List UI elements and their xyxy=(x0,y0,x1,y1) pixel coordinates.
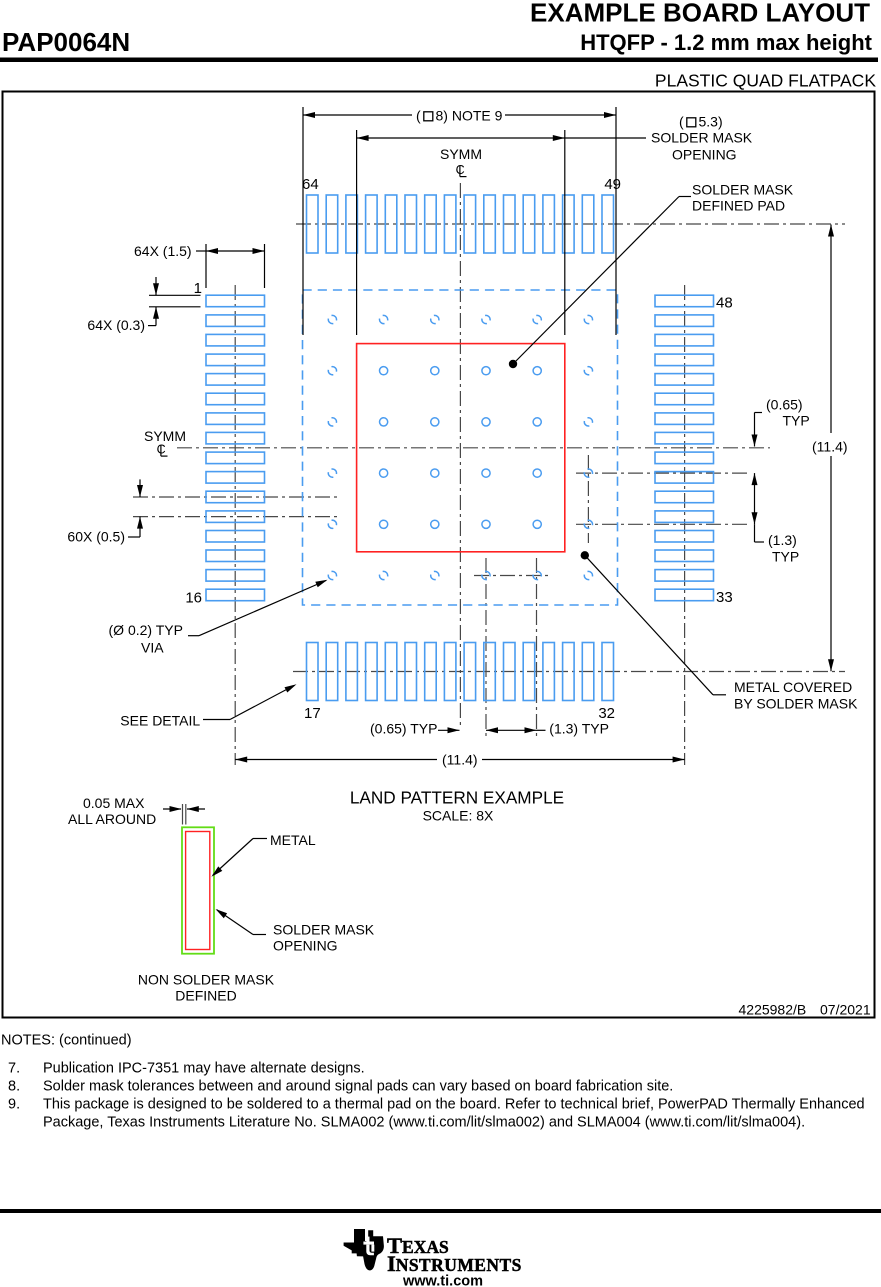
svg-text:32: 32 xyxy=(598,705,615,722)
svg-text:1: 1 xyxy=(194,280,202,297)
svg-text:DEFINED: DEFINED xyxy=(175,988,236,1004)
svg-text:www.ti.com: www.ti.com xyxy=(402,1274,483,1287)
svg-text:EXAMPLE BOARD LAYOUT: EXAMPLE BOARD LAYOUT xyxy=(530,0,870,27)
svg-text:8.: 8. xyxy=(8,1079,20,1095)
svg-text:PLASTIC QUAD FLATPACK: PLASTIC QUAD FLATPACK xyxy=(655,71,876,91)
svg-text:64: 64 xyxy=(302,176,319,193)
svg-text:NON SOLDER MASK: NON SOLDER MASK xyxy=(138,972,275,988)
svg-text:48: 48 xyxy=(716,295,733,312)
svg-text:SEE DETAIL: SEE DETAIL xyxy=(120,713,200,729)
svg-text:Solder mask tolerances between: Solder mask tolerances between and aroun… xyxy=(43,1079,673,1095)
svg-text:INSTRUMENTS: INSTRUMENTS xyxy=(387,1251,522,1276)
svg-text:4225982/B: 4225982/B xyxy=(739,1002,807,1018)
svg-text:Publication IPC-7351 may have: Publication IPC-7351 may have alternate … xyxy=(43,1061,365,1077)
svg-text:07/2021: 07/2021 xyxy=(820,1002,871,1018)
svg-text:(11.4): (11.4) xyxy=(442,752,478,768)
svg-text:5.3): 5.3) xyxy=(699,114,723,130)
svg-text:LAND PATTERN EXAMPLE: LAND PATTERN EXAMPLE xyxy=(350,787,564,807)
svg-text:This package is designed to be: This package is designed to be soldered … xyxy=(43,1097,865,1113)
svg-text:(1.3): (1.3) xyxy=(768,532,797,548)
svg-text:16: 16 xyxy=(185,590,202,607)
svg-text:SOLDER MASK: SOLDER MASK xyxy=(651,130,753,146)
svg-text:(0.65) TYP: (0.65) TYP xyxy=(370,721,437,737)
svg-text:SCALE: 8X: SCALE: 8X xyxy=(423,808,494,824)
svg-text:(1.3) TYP: (1.3) TYP xyxy=(549,721,609,737)
svg-text:64X (1.5): 64X (1.5) xyxy=(134,243,192,259)
svg-text:METAL: METAL xyxy=(270,832,316,848)
svg-text:TYP: TYP xyxy=(772,549,799,565)
svg-text:DEFINED PAD: DEFINED PAD xyxy=(692,198,785,214)
svg-text:TYP: TYP xyxy=(783,413,810,429)
svg-text:OPENING: OPENING xyxy=(273,938,338,954)
svg-text:METAL COVERED: METAL COVERED xyxy=(734,679,852,695)
svg-text:PAP0064N: PAP0064N xyxy=(2,27,130,57)
svg-text:(: ( xyxy=(679,114,684,130)
svg-text:BY SOLDER MASK: BY SOLDER MASK xyxy=(734,696,858,712)
svg-text:60X (0.5): 60X (0.5) xyxy=(67,529,125,545)
svg-text:(Ø 0.2) TYP: (Ø 0.2) TYP xyxy=(109,622,183,638)
svg-text:SOLDER MASK: SOLDER MASK xyxy=(273,922,375,938)
svg-text:HTQFP - 1.2 mm max height: HTQFP - 1.2 mm max height xyxy=(580,30,872,55)
svg-text:ALL AROUND: ALL AROUND xyxy=(68,811,156,827)
svg-text:7.: 7. xyxy=(8,1061,20,1077)
svg-text:Package, Texas Instruments Lit: Package, Texas Instruments Literature No… xyxy=(43,1115,805,1131)
svg-text:SOLDER MASK: SOLDER MASK xyxy=(692,182,794,198)
svg-text:17: 17 xyxy=(304,705,321,722)
svg-text:VIA: VIA xyxy=(141,640,164,656)
svg-text:SYMM: SYMM xyxy=(440,146,482,162)
svg-text:49: 49 xyxy=(604,176,621,193)
svg-text:8) NOTE 9: 8) NOTE 9 xyxy=(436,108,503,124)
svg-text:OPENING: OPENING xyxy=(672,147,737,163)
svg-text:(11.4): (11.4) xyxy=(812,439,848,455)
svg-text:64X (0.3): 64X (0.3) xyxy=(87,317,145,333)
svg-text:NOTES: (continued): NOTES: (continued) xyxy=(1,1033,132,1049)
svg-text:9.: 9. xyxy=(8,1097,20,1113)
svg-text:0.05 MAX: 0.05 MAX xyxy=(83,795,145,811)
svg-text:(: ( xyxy=(416,108,421,124)
svg-text:33: 33 xyxy=(716,589,733,606)
svg-text:(0.65): (0.65) xyxy=(766,397,803,413)
